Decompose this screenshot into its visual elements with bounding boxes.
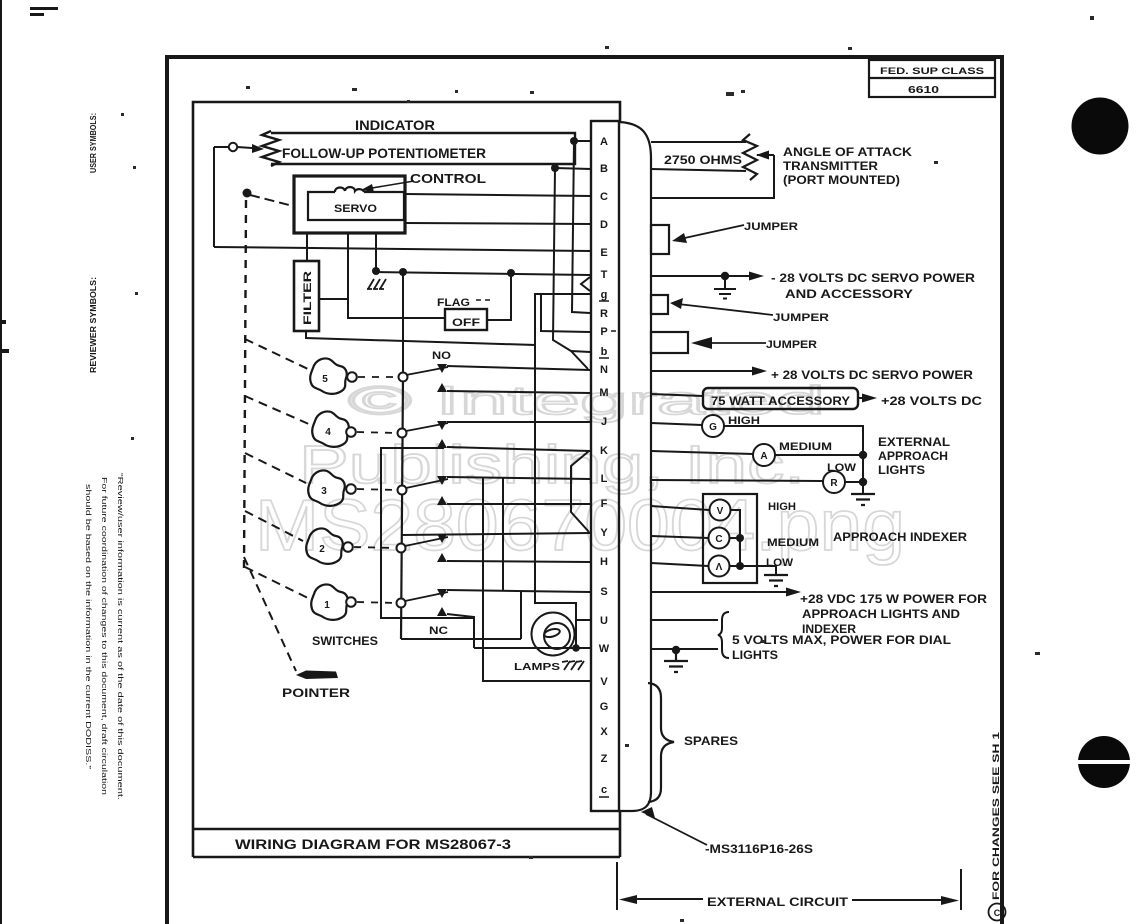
svg-text:- 28 VOLTS DC SERVO POWER: - 28 VOLTS DC SERVO POWER bbox=[771, 271, 975, 285]
svg-text:LIGHTS: LIGHTS bbox=[732, 648, 778, 662]
svg-text:E: E bbox=[600, 247, 607, 259]
svg-text:R: R bbox=[830, 478, 838, 489]
svg-text:5: 5 bbox=[322, 374, 328, 385]
svg-text:WIRING DIAGRAM FOR MS28067-3: WIRING DIAGRAM FOR MS28067-3 bbox=[235, 837, 512, 852]
svg-text:LOW: LOW bbox=[827, 462, 857, 474]
svg-text:ANGLE OF ATTACK: ANGLE OF ATTACK bbox=[783, 145, 912, 159]
svg-text:INDICATOR: INDICATOR bbox=[355, 117, 435, 133]
svg-text:“Review/user information is cu: “Review/user information is current as o… bbox=[116, 473, 125, 800]
svg-text:X: X bbox=[600, 726, 608, 738]
svg-text:FOR CHANGES SEE SH 1: FOR CHANGES SEE SH 1 bbox=[991, 731, 1002, 900]
svg-text:-MS3116P16-26S: -MS3116P16-26S bbox=[705, 844, 813, 856]
svg-text:4: 4 bbox=[325, 427, 331, 438]
svg-text:U: U bbox=[600, 615, 608, 627]
svg-text:Z: Z bbox=[601, 753, 608, 765]
svg-text:2750 OHMS: 2750 OHMS bbox=[664, 153, 742, 167]
svg-text:NO: NO bbox=[432, 350, 452, 362]
svg-text:C: C bbox=[715, 534, 722, 545]
svg-text:LOW: LOW bbox=[766, 557, 794, 569]
svg-text:V: V bbox=[717, 506, 724, 517]
svg-text:1: 1 bbox=[324, 600, 330, 611]
svg-text:SPARES: SPARES bbox=[684, 734, 738, 748]
svg-text:J: J bbox=[601, 416, 607, 428]
svg-text:Y: Y bbox=[600, 527, 608, 539]
svg-text:JUMPER: JUMPER bbox=[766, 339, 817, 351]
svg-text:For future coordination of cha: For future coordination of changes to th… bbox=[100, 477, 109, 795]
svg-text:G: G bbox=[709, 422, 717, 433]
svg-text:C: C bbox=[994, 908, 1001, 918]
svg-text:C: C bbox=[600, 191, 608, 203]
svg-text:R: R bbox=[600, 308, 608, 320]
svg-text:b: b bbox=[601, 346, 608, 358]
svg-text:MS280670004.png: MS280670004.png bbox=[255, 486, 905, 566]
svg-text:g: g bbox=[601, 289, 608, 301]
svg-text:T: T bbox=[601, 269, 608, 281]
svg-text:FOLLOW-UP POTENTIOMETER: FOLLOW-UP POTENTIOMETER bbox=[282, 145, 486, 161]
svg-text:(PORT MOUNTED): (PORT MOUNTED) bbox=[783, 173, 900, 187]
svg-text:APPROACH LIGHTS AND: APPROACH LIGHTS AND bbox=[802, 607, 960, 621]
svg-text:2: 2 bbox=[319, 544, 325, 555]
svg-text:APPROACH: APPROACH bbox=[878, 449, 948, 463]
svg-text:B: B bbox=[600, 163, 608, 175]
svg-text:Λ: Λ bbox=[716, 562, 723, 573]
svg-text:A: A bbox=[600, 136, 608, 148]
svg-text:POINTER: POINTER bbox=[282, 686, 350, 700]
svg-text:SWITCHES: SWITCHES bbox=[312, 636, 378, 648]
svg-text:75 WATT ACCESSORY: 75 WATT ACCESSORY bbox=[711, 394, 850, 408]
svg-text:MEDIUM: MEDIUM bbox=[767, 537, 819, 549]
svg-text:6610: 6610 bbox=[908, 84, 939, 96]
svg-text:USER SYMBOLS:: USER SYMBOLS: bbox=[88, 113, 98, 173]
svg-text:TRANSMITTER: TRANSMITTER bbox=[783, 159, 878, 173]
svg-text:LAMPS: LAMPS bbox=[514, 661, 560, 673]
svg-text:V: V bbox=[600, 676, 608, 688]
svg-text:N: N bbox=[600, 364, 608, 376]
svg-text:REVIEWER SYMBOLS:: REVIEWER SYMBOLS: bbox=[88, 277, 98, 373]
svg-text:OFF: OFF bbox=[452, 317, 480, 329]
svg-text:JUMPER: JUMPER bbox=[773, 312, 829, 324]
svg-text:NC: NC bbox=[429, 625, 448, 637]
svg-text:FLAG: FLAG bbox=[437, 297, 470, 309]
svg-text:FILTER: FILTER bbox=[302, 271, 314, 325]
svg-text:F: F bbox=[601, 498, 608, 510]
svg-text:H: H bbox=[600, 556, 608, 568]
svg-text:c: c bbox=[601, 784, 607, 796]
svg-text:EXTERNAL CIRCUIT: EXTERNAL CIRCUIT bbox=[707, 895, 849, 909]
svg-text:HIGH: HIGH bbox=[768, 501, 796, 513]
svg-text:K: K bbox=[600, 445, 608, 457]
svg-text:should be based on the informa: should be based on the information in th… bbox=[84, 484, 93, 770]
svg-text:+ 28 VOLTS DC SERVO POWER: + 28 VOLTS DC SERVO POWER bbox=[771, 368, 973, 382]
svg-text:G: G bbox=[600, 701, 609, 713]
svg-text:W: W bbox=[599, 643, 610, 655]
svg-text:SERVO: SERVO bbox=[334, 203, 377, 215]
svg-text:A: A bbox=[760, 451, 767, 462]
svg-text:+28 VDC 175 W POWER FOR: +28 VDC 175 W POWER FOR bbox=[800, 592, 987, 606]
svg-text:P: P bbox=[600, 326, 607, 338]
svg-text:MEDIUM: MEDIUM bbox=[779, 441, 832, 453]
svg-text:APPROACH INDEXER: APPROACH INDEXER bbox=[833, 530, 967, 544]
svg-text:AND ACCESSORY: AND ACCESSORY bbox=[785, 287, 913, 301]
svg-text:D: D bbox=[600, 219, 608, 231]
svg-text:+28 VOLTS DC: +28 VOLTS DC bbox=[881, 394, 982, 408]
svg-text:M: M bbox=[599, 387, 608, 399]
svg-text:3: 3 bbox=[321, 486, 327, 497]
svg-text:LIGHTS: LIGHTS bbox=[878, 463, 925, 477]
svg-text:FED. SUP CLASS: FED. SUP CLASS bbox=[880, 66, 984, 77]
svg-text:CONTROL: CONTROL bbox=[410, 171, 486, 186]
svg-text:EXTERNAL: EXTERNAL bbox=[878, 435, 950, 449]
svg-text:JUMPER: JUMPER bbox=[744, 221, 798, 233]
svg-text:L: L bbox=[601, 473, 608, 485]
svg-text:S: S bbox=[600, 586, 607, 598]
